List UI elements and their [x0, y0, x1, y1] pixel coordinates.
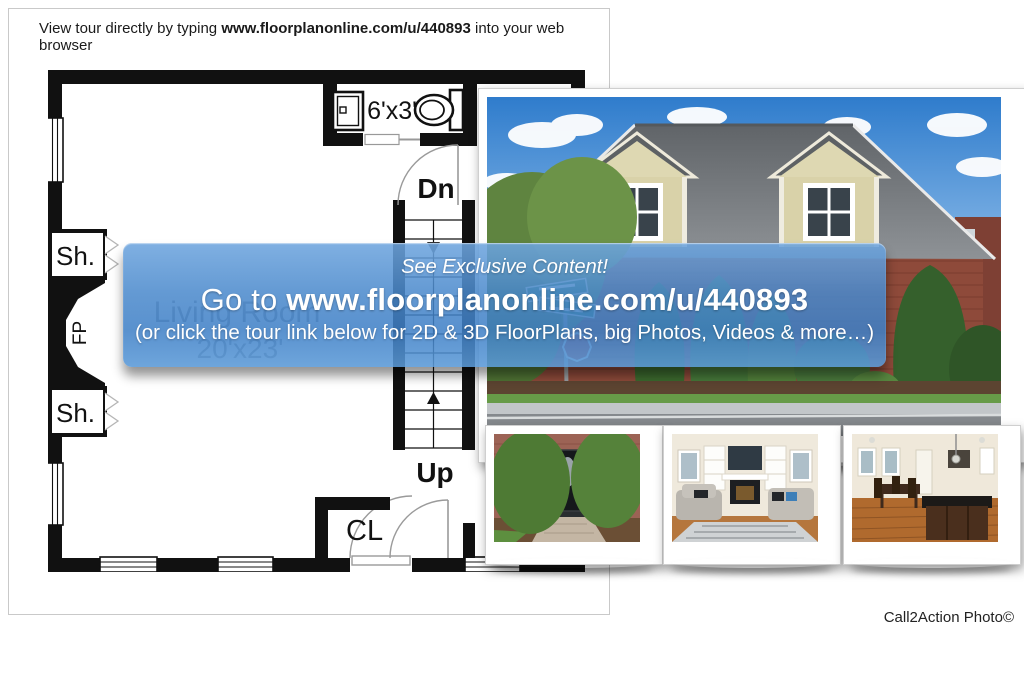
- banner-tagline: See Exclusive Content!: [123, 256, 886, 279]
- window-3: [980, 448, 994, 474]
- flyer-canvas: View tour directly by typing www.floorpl…: [0, 0, 1024, 682]
- shelf-bottom: Sh.: [50, 388, 118, 435]
- closet: CL: [315, 497, 475, 558]
- view-tour-instruction: View tour directly by typing www.floorpl…: [39, 20, 609, 54]
- pendant-light: [952, 455, 960, 463]
- cta-banner[interactable]: See Exclusive Content! Go to www.floorpl…: [123, 243, 886, 367]
- shelf-bottom-label: Sh.: [56, 398, 95, 428]
- sink-drain: [340, 107, 346, 113]
- window-bottom-2: [218, 557, 273, 572]
- fireplace-label: FP: [70, 321, 91, 345]
- wall-art: [728, 446, 762, 470]
- closet-door-arc: [390, 500, 448, 558]
- fire-glow: [736, 486, 754, 500]
- window-left-upper: [48, 118, 63, 182]
- wall-stub: [463, 523, 475, 558]
- ceiling-light-2: [979, 437, 985, 443]
- shelf-top-label: Sh.: [56, 241, 95, 271]
- banner-url-line: Go to www.floorplanonline.com/u/440893: [123, 282, 886, 318]
- toilet-bowl: [420, 101, 444, 120]
- thumbnail-living-room[interactable]: [663, 425, 841, 565]
- sofa-right: [768, 488, 814, 520]
- shelf-top: Sh.: [50, 231, 118, 278]
- banner-subtext: (or click the tour link below for 2D & 3…: [123, 321, 886, 345]
- bath-pocket-door: [365, 135, 399, 145]
- mantel: [722, 474, 768, 480]
- banner-tour-url[interactable]: www.floorplanonline.com/u/440893: [286, 282, 808, 317]
- wall-top: [48, 70, 585, 84]
- stairs-up-arrow: [427, 392, 440, 404]
- instruction-prefix: View tour directly by typing: [39, 20, 221, 37]
- thumbnail-front-door[interactable]: [485, 425, 663, 565]
- banner-goto-text: Go to: [201, 282, 287, 317]
- bath-dimension: 6'x3': [367, 97, 417, 125]
- sofa-left: [676, 484, 722, 520]
- sidewalk: [487, 403, 1001, 414]
- closet-label: CL: [346, 515, 383, 547]
- photo-credit: Call2Action Photo©: [884, 609, 1014, 626]
- tour-url-text: www.floorplanonline.com/u/440893: [221, 20, 471, 37]
- thumbnail-kitchen[interactable]: [843, 425, 1021, 565]
- stairs-down-label: Dn: [417, 173, 454, 204]
- window-bottom-1: [100, 557, 157, 572]
- kitchen-island: [922, 496, 992, 540]
- window-left-lower: [48, 463, 63, 525]
- stairs-up-label: Up: [416, 457, 453, 488]
- fireplace: FP: [48, 278, 105, 388]
- ceiling-light: [869, 437, 875, 443]
